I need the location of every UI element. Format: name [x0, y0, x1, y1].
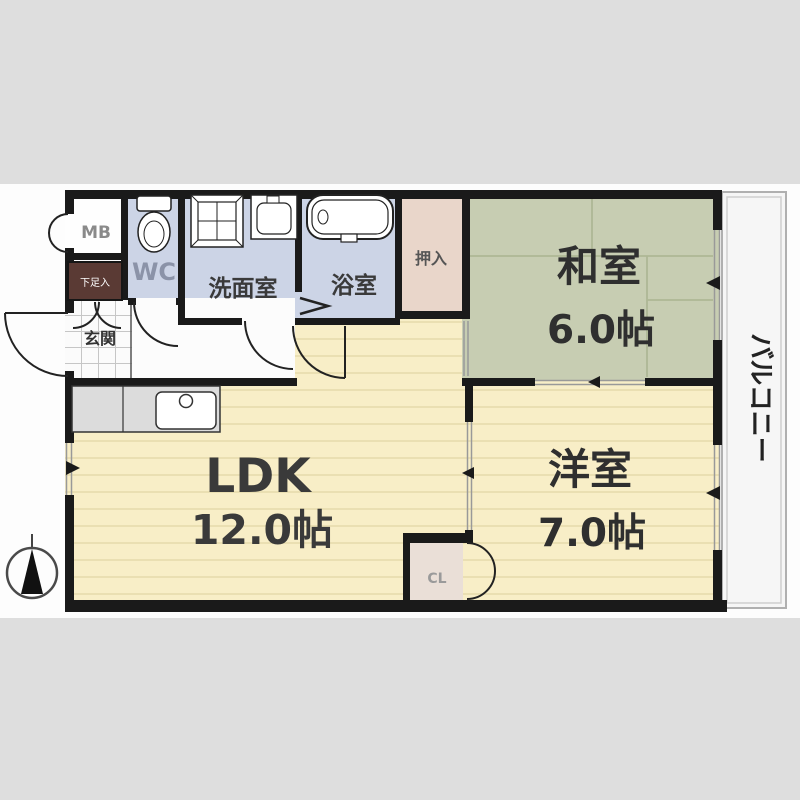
bathtub-icon	[307, 195, 393, 242]
meter-box-label: MB	[81, 223, 111, 243]
floor-plan-svg: MB 下足入 WC 洗面室 浴室 押入 玄関 和室 6.0帖 LDK 12.0帖…	[0, 0, 800, 800]
ldk-label: LDK	[205, 449, 312, 504]
washitsu-label: 和室	[557, 242, 641, 291]
washitsu-size-label: 6.0帖	[547, 308, 655, 353]
shoe-box-label: 下足入	[80, 277, 110, 289]
genkan-label: 玄関	[84, 329, 116, 348]
oshiire-label: 押入	[415, 249, 447, 268]
kitchen-counter	[72, 386, 220, 432]
yoshitsu-label: 洋室	[548, 445, 632, 494]
bathroom-label: 浴室	[331, 272, 377, 299]
washroom-label: 洗面室	[209, 275, 278, 302]
ldk-size-label: 12.0帖	[191, 506, 333, 554]
cl-label: CL	[427, 571, 446, 587]
hallway	[128, 298, 295, 386]
washer-pan-icon	[191, 195, 243, 247]
toilet-icon	[137, 196, 171, 252]
yoshitsu-size-label: 7.0帖	[538, 511, 646, 556]
corridor-flooring	[295, 318, 462, 386]
floor-plan-image: MB 下足入 WC 洗面室 浴室 押入 玄関 和室 6.0帖 LDK 12.0帖…	[0, 0, 800, 800]
yoshitsu-room	[465, 380, 720, 612]
kitchen-faucet-icon	[180, 395, 193, 408]
wash-basin-icon	[251, 195, 297, 239]
balcony-label: バルコニー	[745, 333, 775, 462]
wc-label: WC	[132, 258, 176, 286]
